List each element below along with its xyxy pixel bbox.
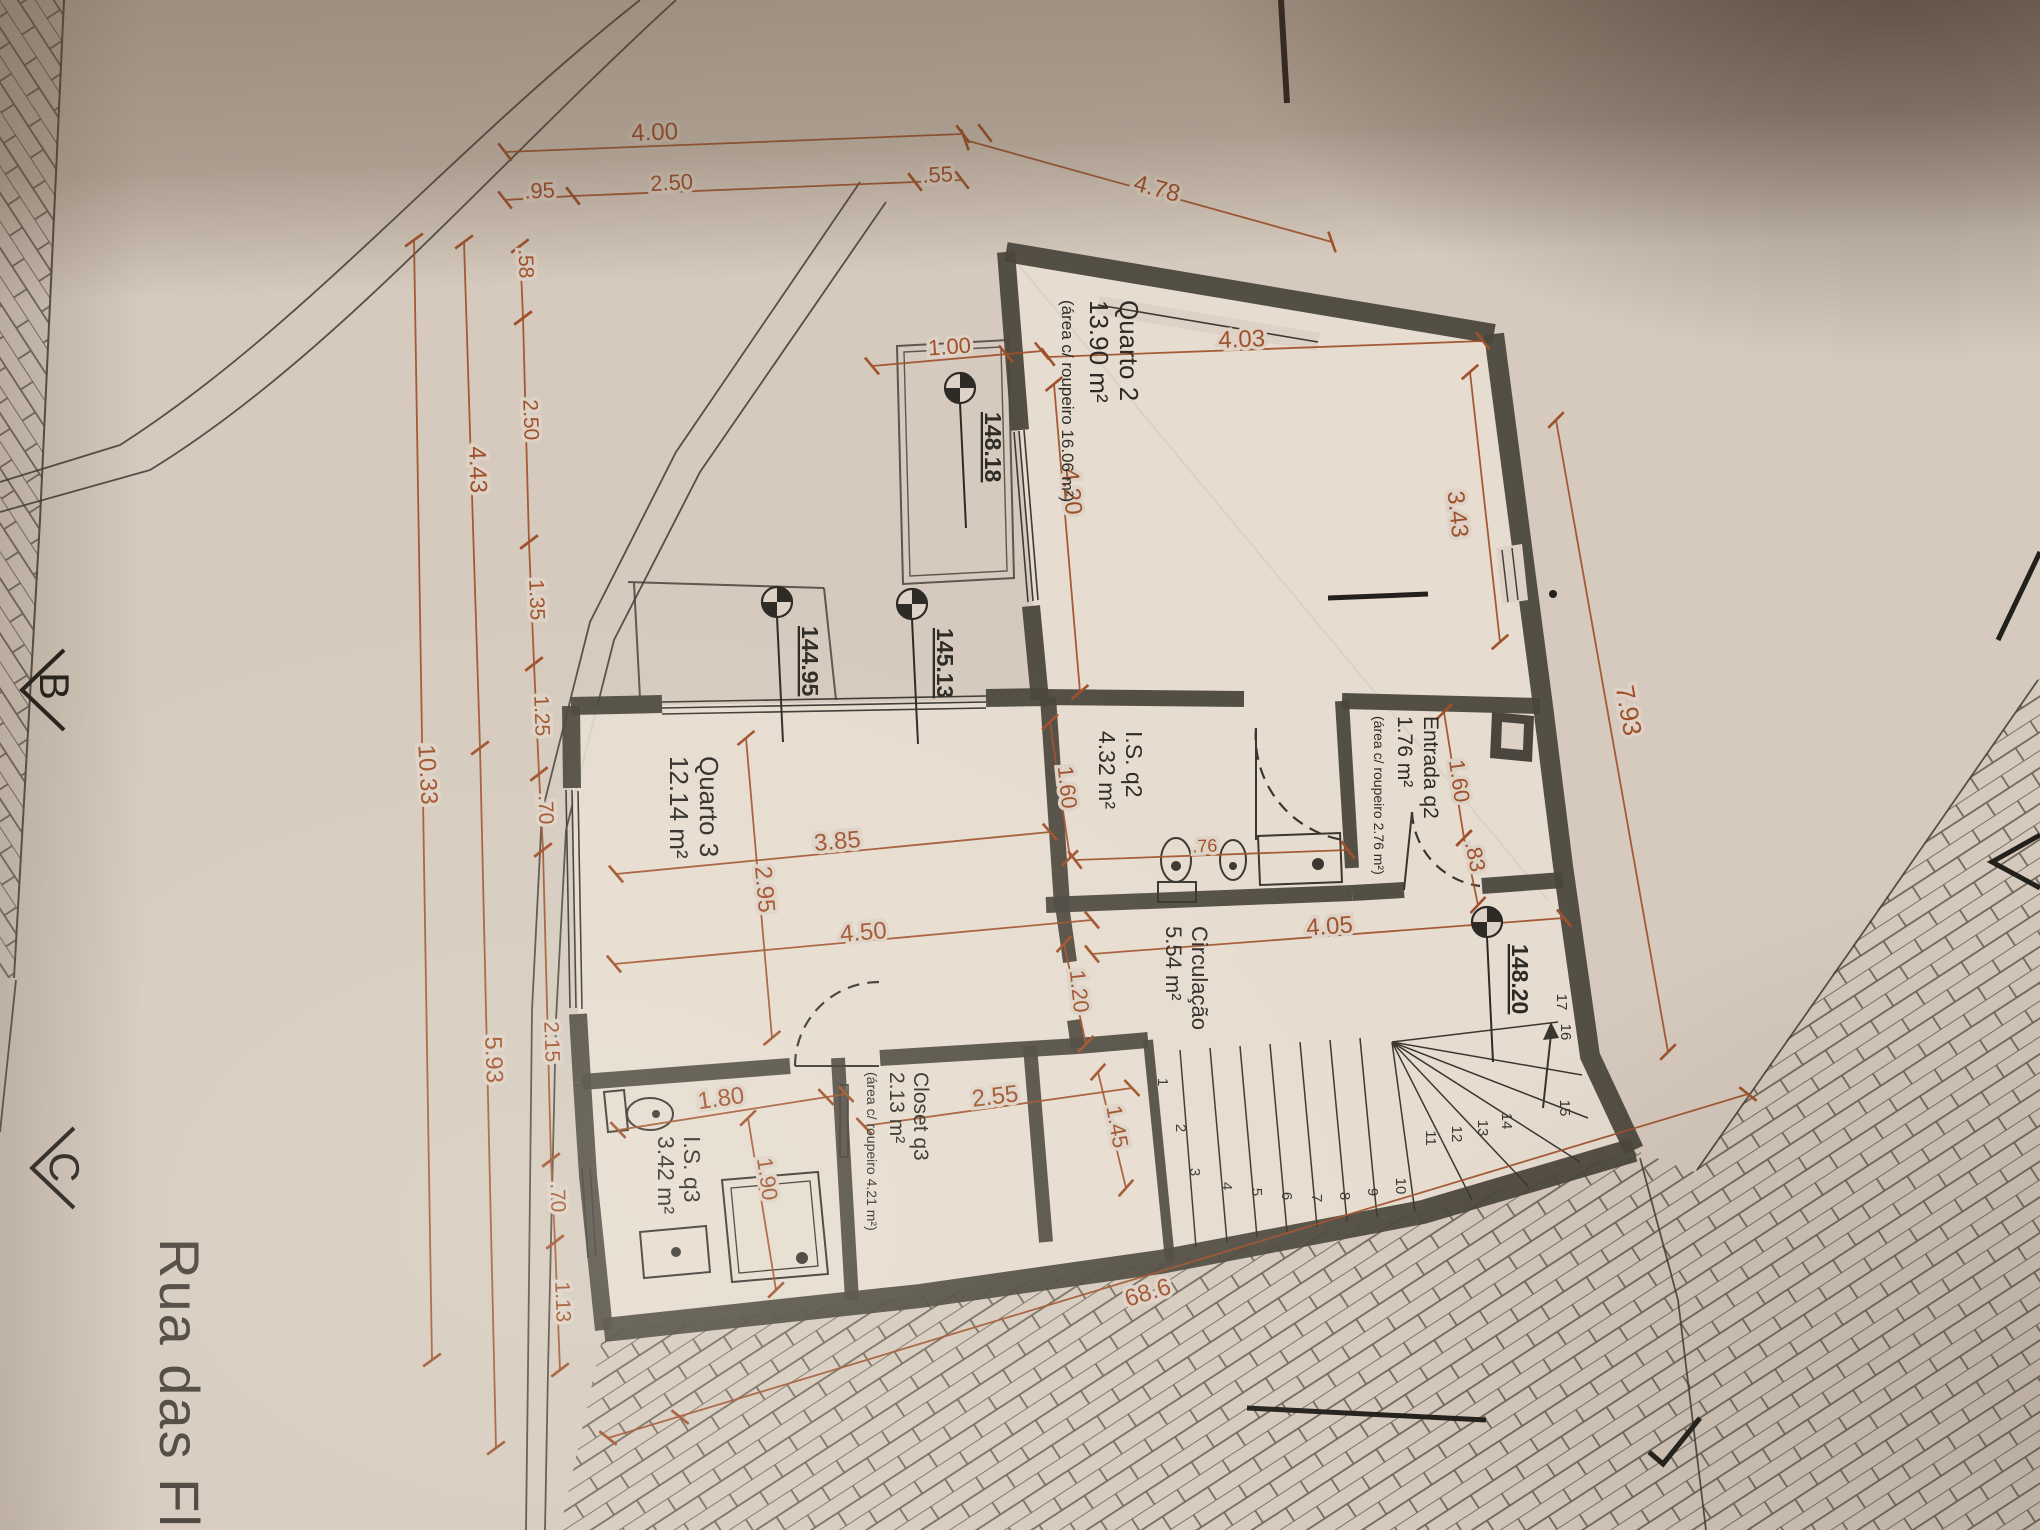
stair-number: 12 — [1448, 1126, 1465, 1143]
dim-label-q3_c: 4.50 — [839, 917, 888, 948]
shower-drain-isq3 — [796, 1252, 808, 1264]
elevation-label: 148.18 — [980, 412, 1006, 483]
room-area: 13.90 m² — [1084, 300, 1114, 403]
elevation-quadrant — [912, 589, 927, 604]
dim-line-l_upper — [464, 242, 480, 748]
dim-label-r_total: 7.93 — [1610, 683, 1648, 738]
dim-label-c1: .58 — [513, 249, 537, 279]
dim-label-top_total: 4.00 — [631, 118, 679, 147]
room-area: 5.54 m² — [1161, 926, 1186, 1001]
dim-tick — [1660, 1044, 1676, 1060]
dim-tick — [978, 124, 991, 142]
stair-number: 2 — [1172, 1124, 1189, 1132]
section-label-b: B — [31, 672, 78, 700]
elevation-quadrant — [777, 587, 792, 602]
bidet-drain-isq2 — [1229, 862, 1237, 870]
ink-dot — [1549, 590, 1557, 598]
dim-label-top_s2: 2.50 — [650, 169, 694, 196]
elevation-stem — [960, 403, 966, 528]
street-name: Rua das Fl — [148, 1238, 211, 1529]
elevation-quadrant — [897, 604, 912, 619]
road-line — [0, 0, 640, 482]
stair-number: 17 — [1553, 994, 1570, 1011]
stair-number: 8 — [1336, 1192, 1353, 1200]
section-label-c: C — [41, 1152, 88, 1182]
dim-label-top_s1: .95 — [524, 177, 556, 204]
stair-number: 10 — [1392, 1178, 1409, 1195]
plan-drawing: 1234567891011121314151617 4.00.952.50.55… — [0, 0, 2040, 1530]
dim-line-top_total — [505, 134, 963, 152]
road-line — [0, 980, 16, 1132]
dim-label-top_diag: 4.78 — [1131, 170, 1183, 208]
room-area: 4.32 m² — [1094, 731, 1120, 809]
road-line — [0, 0, 676, 512]
stair-number: 13 — [1474, 1120, 1491, 1137]
room-name: Quarto 3 — [694, 756, 724, 857]
wall — [1031, 606, 1040, 700]
stair-number: 4 — [1218, 1182, 1235, 1190]
terrace-line — [628, 582, 824, 588]
dim-label-c8: 1.13 — [550, 1281, 574, 1323]
wall — [1342, 701, 1540, 706]
dim-label-l_upper: 4.43 — [463, 446, 492, 494]
room-note: (área c/ roupeiro 4.21 m²) — [864, 1072, 880, 1231]
room-area: 3.42 m² — [653, 1136, 679, 1214]
ink-mark — [1281, 0, 1287, 103]
dim-label-is2_fix: .76 — [1192, 836, 1218, 857]
stair-number: 14 — [1498, 1113, 1515, 1130]
room-name: I.S. q3 — [679, 1136, 705, 1202]
toilet-drain-isq3 — [652, 1110, 660, 1118]
stair-number: 11 — [1422, 1130, 1439, 1146]
stair-number: 9 — [1364, 1188, 1381, 1196]
dim-tick — [1548, 412, 1564, 428]
toilet-drain-isq2 — [1171, 861, 1181, 871]
wall — [571, 706, 572, 788]
wall — [578, 1014, 582, 1082]
terrace-line — [824, 588, 836, 700]
dim-label-is2_h: 1.60 — [1053, 765, 1082, 810]
stair-number: 16 — [1557, 1024, 1574, 1041]
room-name: I.S. q2 — [1121, 731, 1147, 797]
wall-pillar-core — [1501, 722, 1524, 750]
elevation-label: 144.95 — [797, 626, 823, 697]
room-name: Quarto 2 — [1114, 300, 1144, 401]
wall — [1352, 890, 1404, 893]
stair-number: 1 — [1154, 1078, 1171, 1086]
dim-label-circ_w: 4.05 — [1305, 911, 1353, 941]
dim-label-c2: 2.50 — [518, 399, 542, 441]
dim-label-c3: 1.35 — [524, 579, 548, 621]
stair-number: 7 — [1308, 1194, 1325, 1202]
dim-label-c4: 1.25 — [529, 695, 553, 737]
elevation-label: 148.20 — [1507, 944, 1533, 1014]
wall — [1040, 697, 1244, 699]
dim-label-c6: 2.15 — [539, 1021, 563, 1063]
dim-label-l_lower: 5.93 — [479, 1036, 508, 1084]
dim-label-q2_r: 3.43 — [1442, 490, 1474, 539]
room-name: Closet q3 — [909, 1072, 932, 1161]
basin-drain-isq2 — [1312, 858, 1324, 870]
dim-label-c7: .70 — [545, 1183, 569, 1213]
dim-label-circ_h: 1.20 — [1065, 969, 1094, 1014]
stair-number: 3 — [1186, 1168, 1203, 1176]
room-area: 2.13 m² — [885, 1072, 908, 1143]
dim-label-top_s3: .55 — [922, 161, 954, 188]
room-note: (área c/ roupeiro 2.76 m²) — [1371, 716, 1387, 875]
room-label-quarto3: Quarto 312.14 m² — [664, 756, 724, 859]
elevation-marker: 148.18 — [945, 373, 1006, 528]
elevation-quadrant — [960, 373, 975, 388]
terrace-line — [634, 583, 640, 698]
room-area: 1.76 m² — [1393, 716, 1416, 787]
dim-line-top_s2 — [573, 182, 915, 196]
floor-plan-photo: 1234567891011121314151617 4.00.952.50.55… — [0, 0, 2040, 1530]
dim-label-terrace: 1.00 — [927, 333, 971, 361]
stair-number: 6 — [1278, 1192, 1295, 1200]
elevation-quadrant — [762, 602, 777, 617]
dim-label-cl_w: 2.55 — [970, 1080, 1020, 1112]
basin-drain-isq3 — [671, 1247, 681, 1257]
dim-label-c5: .70 — [533, 795, 557, 825]
hatch-left-strip — [0, 0, 64, 978]
room-note: (área c/ roupeiro 16.06 m²) — [1058, 300, 1077, 502]
elevation-quadrant — [945, 388, 960, 403]
ink-mark — [1998, 552, 2040, 640]
dim-line-l_lower — [480, 748, 496, 1448]
dim-label-q2_w: 4.03 — [1218, 325, 1266, 354]
stair-number: 15 — [1556, 1100, 1573, 1117]
wall — [1482, 880, 1563, 886]
dim-label-l_total: 10.33 — [412, 744, 442, 805]
room-area: 12.14 m² — [664, 756, 694, 859]
wall — [571, 704, 662, 706]
dim-label-q3_a: 3.85 — [813, 826, 862, 857]
stair-number: 5 — [1248, 1188, 1265, 1196]
dim-line-c6 — [543, 850, 551, 1160]
elevation-label: 145.13 — [932, 628, 958, 698]
room-name: Entrada q2 — [1419, 716, 1442, 819]
dim-label-q3_b: 2.95 — [749, 865, 780, 914]
room-name: Circulação — [1187, 926, 1212, 1030]
